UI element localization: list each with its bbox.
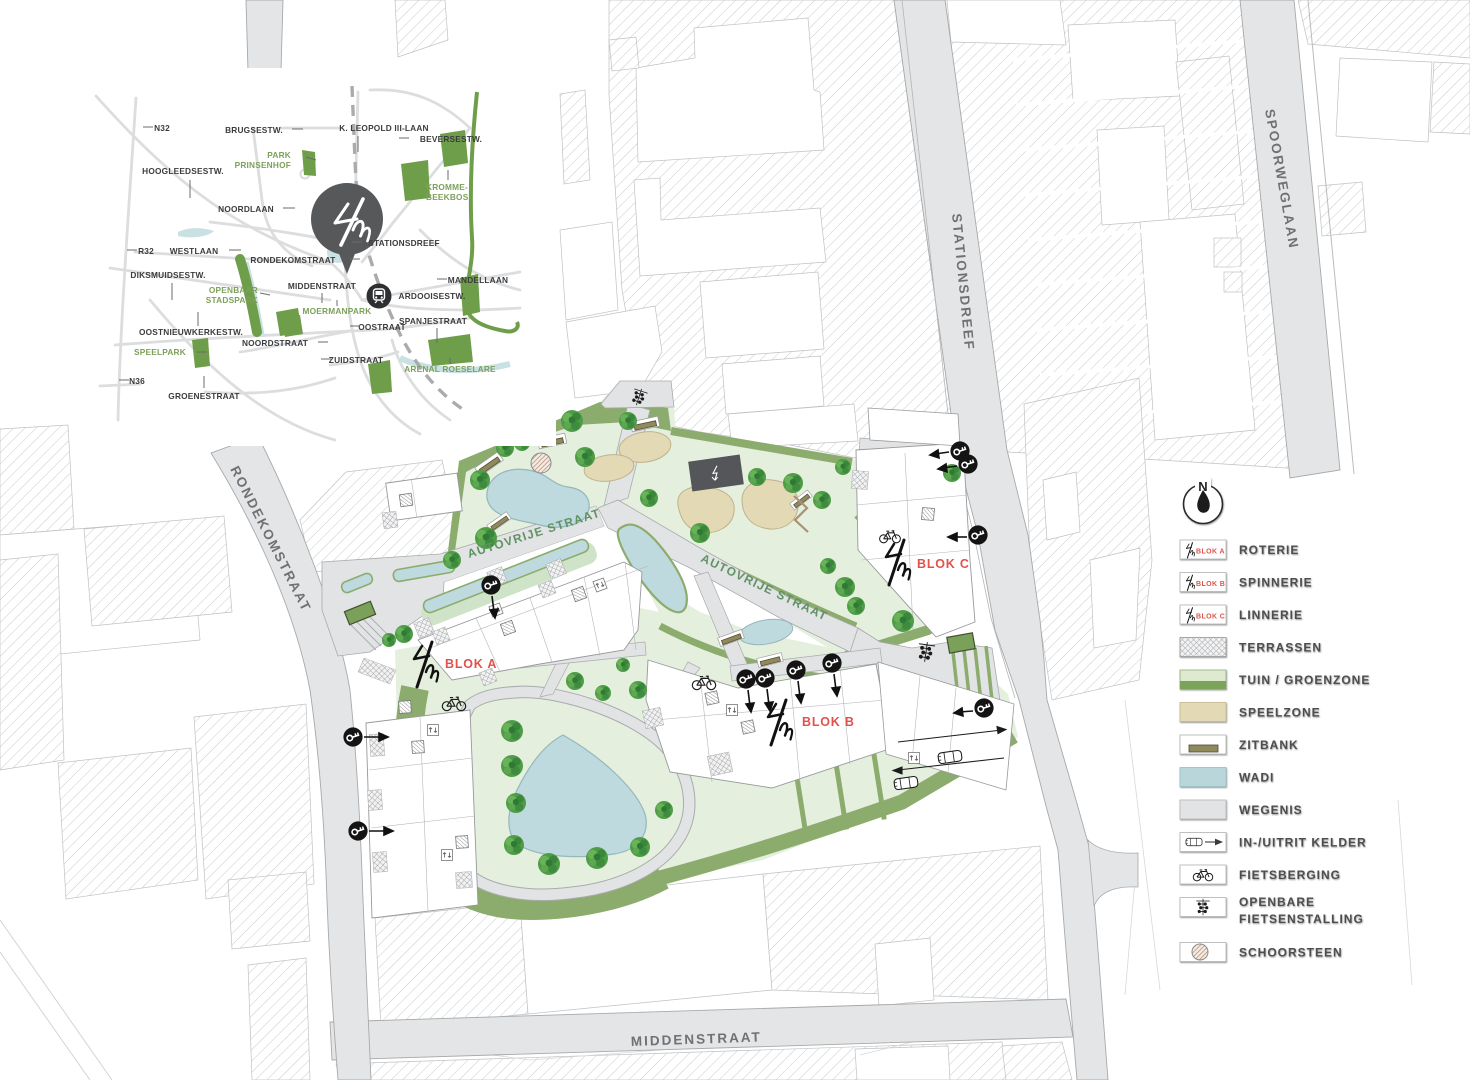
- svg-text:NOORDLAAN: NOORDLAAN: [218, 204, 274, 214]
- svg-text:PARK: PARK: [267, 150, 291, 160]
- svg-text:MOERMANPARK: MOERMANPARK: [303, 306, 372, 316]
- svg-text:BEEKBOS: BEEKBOS: [426, 192, 469, 202]
- svg-text:SPANJESTRAAT: SPANJESTRAAT: [399, 316, 467, 326]
- svg-text:TUIN / GROENZONE: TUIN / GROENZONE: [1239, 673, 1370, 687]
- svg-text:NOORDSTRAAT: NOORDSTRAAT: [242, 338, 308, 348]
- svg-text:PRINSENHOF: PRINSENHOF: [235, 160, 291, 170]
- svg-text:N32: N32: [154, 123, 170, 133]
- svg-text:BLOK C: BLOK C: [1196, 614, 1225, 621]
- svg-text:WESTLAAN: WESTLAAN: [170, 246, 219, 256]
- svg-text:R32: R32: [138, 246, 154, 256]
- svg-text:KROMME-: KROMME-: [426, 182, 468, 192]
- svg-text:GROENESTRAAT: GROENESTRAAT: [168, 391, 239, 401]
- svg-text:SPINNERIE: SPINNERIE: [1239, 576, 1313, 590]
- svg-text:OOSTRAAT: OOSTRAAT: [358, 322, 406, 332]
- svg-text:ARDOOISESTW.: ARDOOISESTW.: [399, 291, 466, 301]
- svg-text:WADI: WADI: [1239, 771, 1274, 785]
- svg-text:FIETSENSTALLING: FIETSENSTALLING: [1239, 912, 1364, 926]
- svg-text:HOOGLEEDSESTW.: HOOGLEEDSESTW.: [142, 166, 224, 176]
- svg-text:SCHOORSTEEN: SCHOORSTEEN: [1239, 946, 1343, 960]
- svg-text:BLOK C: BLOK C: [917, 557, 970, 571]
- svg-text:IN-/UITRIT KELDER: IN-/UITRIT KELDER: [1239, 836, 1367, 850]
- svg-text:FIETSBERGING: FIETSBERGING: [1239, 868, 1341, 882]
- svg-text:BLOK A: BLOK A: [1196, 549, 1225, 556]
- svg-text:ARENAL ROESELARE: ARENAL ROESELARE: [404, 364, 496, 374]
- svg-text:DIKSMUIDSESTW.: DIKSMUIDSESTW.: [130, 270, 205, 280]
- svg-text:ZITBANK: ZITBANK: [1239, 738, 1299, 752]
- svg-text:WEGENIS: WEGENIS: [1239, 803, 1303, 817]
- svg-text:ZUIDSTRAAT: ZUIDSTRAAT: [329, 355, 383, 365]
- svg-text:RONDEKOMSTRAAT: RONDEKOMSTRAAT: [250, 255, 335, 265]
- svg-text:OPENBAAR: OPENBAAR: [209, 285, 258, 295]
- svg-text:BEVERSESTW.: BEVERSESTW.: [420, 134, 482, 144]
- svg-text:SPEELPARK: SPEELPARK: [134, 347, 186, 357]
- svg-text:MIDDENSTRAAT: MIDDENSTRAAT: [288, 281, 356, 291]
- svg-text:BLOK A: BLOK A: [445, 657, 497, 671]
- svg-text:STATIONSDREEF: STATIONSDREEF: [368, 238, 439, 248]
- svg-text:OOSTNIEUWKERKESTW.: OOSTNIEUWKERKESTW.: [139, 327, 243, 337]
- svg-text:BRUGSESTW.: BRUGSESTW.: [225, 125, 283, 135]
- svg-text:LINNERIE: LINNERIE: [1239, 608, 1303, 622]
- svg-text:N36: N36: [129, 376, 145, 386]
- svg-text:TERRASSEN: TERRASSEN: [1239, 641, 1322, 655]
- svg-text:MANDELLAAN: MANDELLAAN: [448, 275, 509, 285]
- svg-text:OPENBARE: OPENBARE: [1239, 895, 1315, 909]
- svg-text:SPEELZONE: SPEELZONE: [1239, 706, 1321, 720]
- svg-text:BLOK B: BLOK B: [1196, 581, 1225, 588]
- svg-text:K. LEOPOLD III-LAAN: K. LEOPOLD III-LAAN: [339, 123, 429, 133]
- svg-text:ROTERIE: ROTERIE: [1239, 543, 1299, 557]
- svg-text:STADSPARK: STADSPARK: [206, 295, 258, 305]
- svg-text:BLOK B: BLOK B: [802, 715, 855, 729]
